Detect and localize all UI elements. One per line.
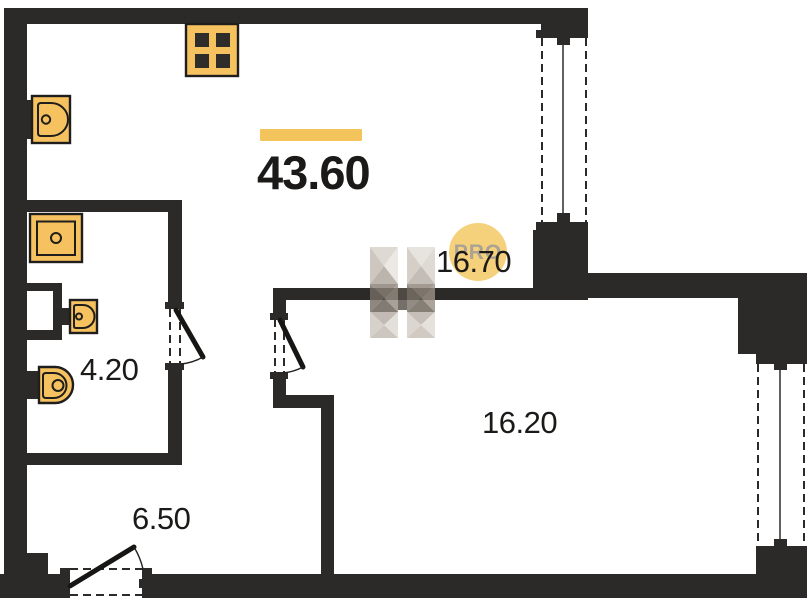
kitchen-window <box>542 37 586 222</box>
area-label-bathroom: 4.20 <box>80 354 138 385</box>
toilet-icon <box>26 367 73 403</box>
area-label-kitchen-living: 16.70 <box>436 246 511 277</box>
kitchen-door-swing-arc <box>283 367 303 373</box>
entrance-door-swing-arc <box>134 547 143 569</box>
kitchen-sink-icon <box>26 96 70 143</box>
total-area-label: 43.60 <box>257 149 370 196</box>
kitchen-door <box>275 319 303 373</box>
bathroom-door-swing-arc <box>181 357 203 364</box>
plan-overlay: PRO <box>0 0 808 600</box>
bathroom-sink-icon <box>61 300 97 333</box>
floor-plan: PRO 43.60 16.70 16.20 4.20 6.50 <box>0 0 808 600</box>
stove-icon <box>186 24 238 76</box>
entrance-door <box>70 547 143 595</box>
watermark-logo <box>370 247 435 338</box>
area-label-room: 16.20 <box>482 407 557 438</box>
entrance-door-leaf <box>70 547 134 586</box>
washing-machine-icon <box>30 214 82 262</box>
room-window <box>758 362 804 547</box>
area-label-hallway: 6.50 <box>132 503 190 534</box>
bathroom-door <box>170 309 203 364</box>
total-area-accent-bar <box>260 129 362 141</box>
